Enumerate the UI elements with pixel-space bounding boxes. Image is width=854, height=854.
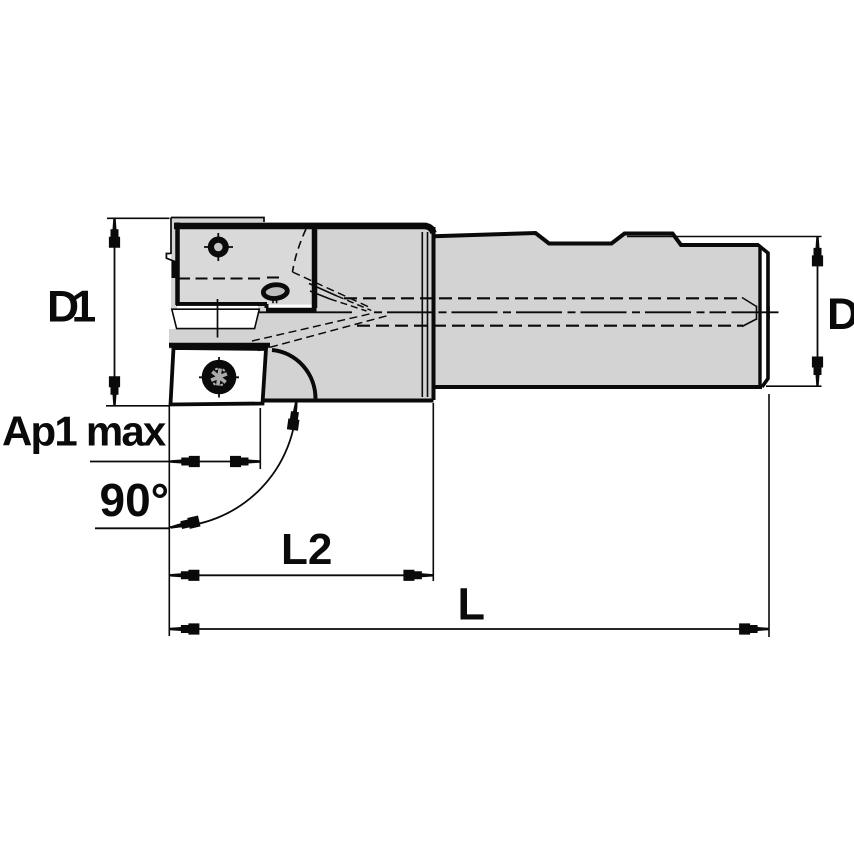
svg-text:L2: L2 bbox=[281, 525, 332, 574]
svg-text:1: 1 bbox=[72, 283, 97, 332]
svg-text:D: D bbox=[827, 290, 854, 339]
svg-text:90°: 90° bbox=[100, 474, 170, 526]
svg-text:L: L bbox=[458, 579, 486, 630]
svg-text:Ap1 max: Ap1 max bbox=[2, 407, 167, 454]
